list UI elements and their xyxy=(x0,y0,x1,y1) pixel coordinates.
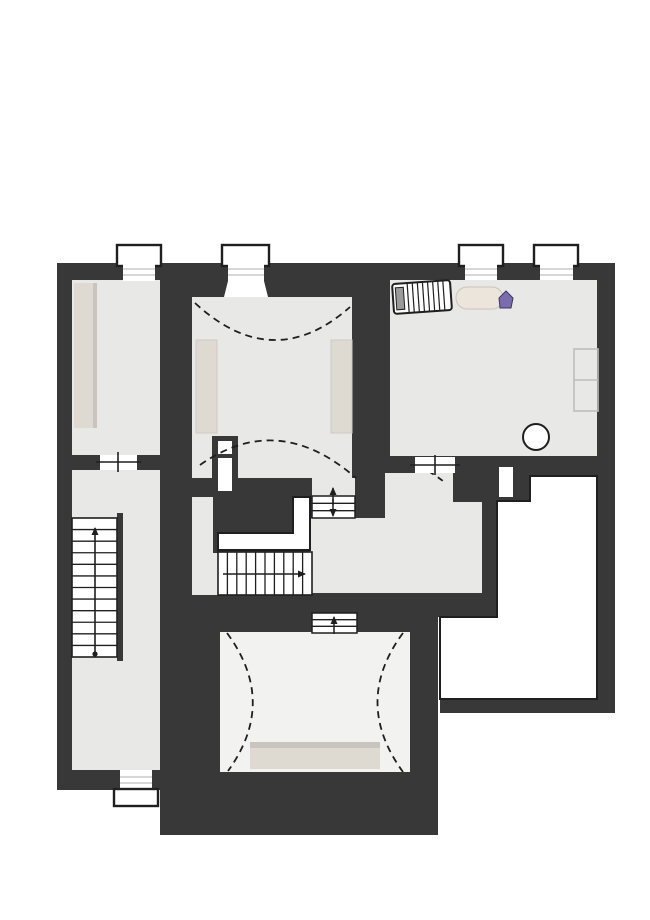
bolster-cushion xyxy=(456,287,503,309)
wall-niche xyxy=(499,467,513,497)
stool-circle xyxy=(523,424,549,450)
chimney-flue-small xyxy=(218,441,232,454)
floor-plan-drawing xyxy=(0,0,650,920)
window-frame-5 xyxy=(114,789,158,806)
window-band-2 xyxy=(228,264,264,282)
window-frame-3 xyxy=(459,245,503,266)
kneewall-middle-left xyxy=(196,340,217,433)
window-band-5 xyxy=(120,770,152,790)
window-frame-1 xyxy=(117,245,161,266)
chimney-flue-large xyxy=(218,458,232,491)
window-band-3 xyxy=(465,264,497,280)
window-frame-4 xyxy=(534,245,578,266)
window-band-4 xyxy=(540,264,573,280)
shelf-left-room-shadow xyxy=(93,283,97,428)
bed-platform xyxy=(250,748,380,769)
kneewall-middle-right xyxy=(331,340,352,433)
shelf-left-room xyxy=(74,283,96,428)
floor-plan-page xyxy=(0,0,650,920)
radiator-valve xyxy=(395,287,405,310)
landing-floor xyxy=(310,518,482,593)
floor-plan-root xyxy=(57,245,615,835)
radiator xyxy=(392,280,452,314)
stair-left-stringer xyxy=(117,513,123,661)
window-frame-2 xyxy=(222,245,269,266)
window-splay-2 xyxy=(224,281,268,297)
stair-left-start-dot xyxy=(92,651,97,656)
window-band-1 xyxy=(123,264,155,281)
hall-floor-east xyxy=(453,502,482,518)
